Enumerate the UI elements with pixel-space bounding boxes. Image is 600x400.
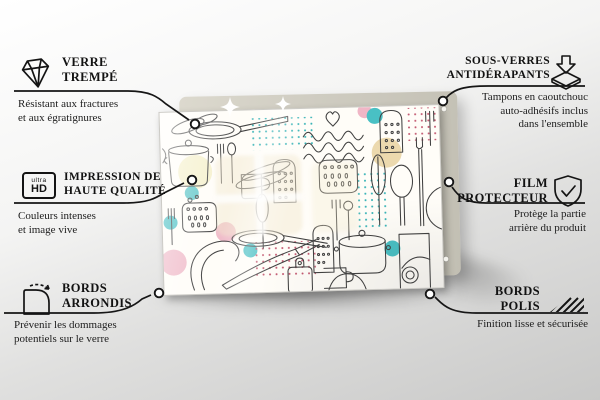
glass-board-product [158, 104, 444, 296]
callout-description: Finition lisse et sécurisée [477, 318, 588, 332]
callout-title: IMPRESSION DE HAUTE QUALITÉ [64, 170, 166, 198]
callout-description: Résistant aux fractures et aux égratignu… [18, 98, 118, 125]
product-infographic: VERRE TREMPÉ Résistant aux fractures et … [0, 0, 600, 400]
polished-edges-icon [546, 284, 586, 319]
glass-glare [160, 105, 444, 295]
rounded-corner-icon [18, 282, 56, 321]
callout-title: BORDS POLIS [495, 284, 540, 314]
callout-title: FILM PROTECTEUR [457, 176, 548, 206]
callout-title: BORDS ARRONDIS [62, 281, 132, 311]
callout-title: VERRE TREMPÉ [62, 55, 118, 85]
diamond-icon [16, 54, 56, 99]
callout-description: Tampons en caoutchouc auto-adhésifs incl… [482, 91, 588, 132]
non-slip-pads-icon [550, 54, 582, 95]
callout-title: SOUS-VERRES ANTIDÉRAPANTS [447, 54, 550, 82]
callout-description: Couleurs intenses et image vive [18, 210, 96, 237]
callout-description: Protège la partie arrière du produit [509, 208, 586, 235]
callout-description: Prévenir les dommages potentiels sur le … [14, 319, 117, 346]
ultra-hd-icon: ultra HD [22, 172, 56, 199]
